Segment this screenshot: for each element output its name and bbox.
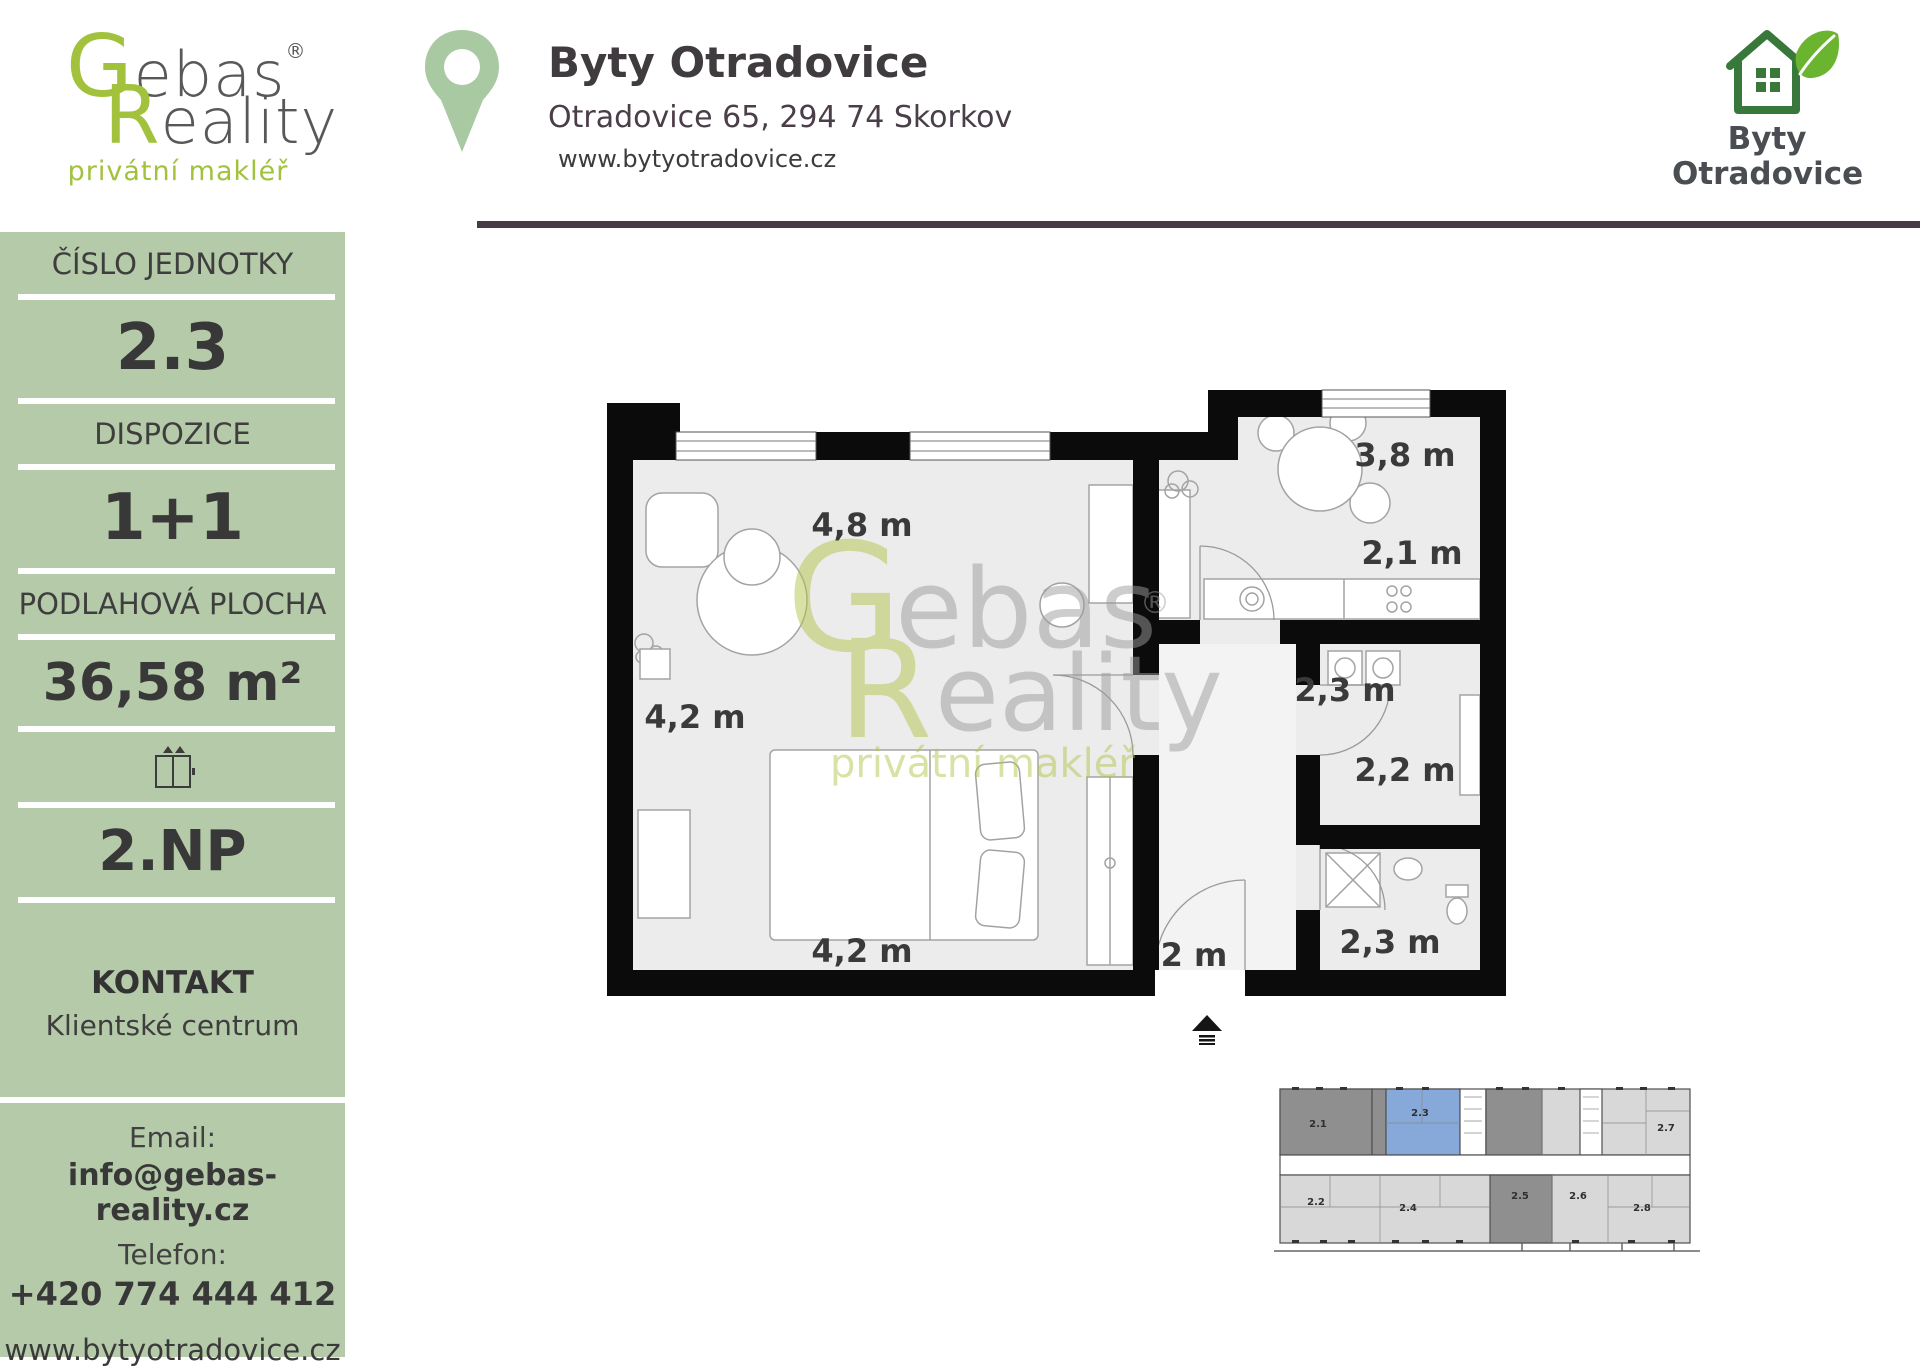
- unit-label: 2.6: [1569, 1191, 1587, 1202]
- unit-label: 2.7: [1657, 1123, 1675, 1134]
- header-divider: [477, 221, 1920, 228]
- measurement-label: 2,3 m: [1339, 923, 1440, 961]
- leaf-icon: [1796, 31, 1839, 78]
- floor-area-label: PODLAHOVÁ PLOCHA: [0, 586, 345, 622]
- highlighted-unit-2-3: [1386, 1089, 1460, 1155]
- measurement-label: 4,2 m: [644, 698, 745, 736]
- divider: [18, 897, 335, 903]
- layout-label: DISPOZICE: [0, 416, 345, 452]
- phone-label: Telefon:: [0, 1238, 345, 1271]
- floor-area-value: 36,58 m²: [0, 652, 345, 714]
- unit-label: 2.4: [1399, 1203, 1417, 1214]
- gebas-logo-tagline: privátní makléř: [58, 156, 298, 187]
- measurement-label: 2,1 m: [1361, 534, 1462, 572]
- miniplan-ground-line: [1274, 1243, 1700, 1251]
- unit-label: 2.2: [1307, 1197, 1325, 1208]
- house-leaf-icon: [1692, 18, 1842, 118]
- website-link[interactable]: www.bytyotradovice.cz: [558, 145, 1012, 173]
- divider: [18, 568, 335, 574]
- divider: [18, 802, 335, 808]
- divider: [18, 294, 335, 300]
- measurement-label: 2 m: [1161, 936, 1228, 974]
- header: Byty Otradovice Otradovice 65, 294 74 Sk…: [548, 40, 1012, 173]
- gebas-reality-logo: Gebas® Reality privátní makléř: [58, 24, 288, 204]
- sidebar: ČÍSLO JEDNOTKY 2.3 DISPOZICE 1+1 PODLAHO…: [0, 232, 345, 1097]
- unit-label: 2.5: [1511, 1191, 1529, 1202]
- coffee-table: [724, 529, 780, 585]
- location-pin-icon: [423, 28, 501, 158]
- divider: [18, 726, 335, 732]
- bathroom-sink: [1394, 858, 1422, 880]
- kitchen-counter: [1204, 579, 1480, 619]
- measurement-label: 2,3 m: [1294, 671, 1395, 709]
- sidebar-contact-block: Email: info@gebas-reality.cz Telefon: +4…: [0, 1103, 345, 1357]
- window: [1322, 390, 1430, 417]
- measurement-label: 3,8 m: [1354, 436, 1455, 474]
- gebas-logo-line2: Reality: [104, 76, 338, 156]
- measurement-label: 4,8 m: [811, 506, 912, 544]
- watermark-eality: eality: [935, 633, 1223, 755]
- watermark-tagline: privátní makléř: [830, 741, 1135, 787]
- wardrobe: [1087, 777, 1133, 965]
- email-link[interactable]: info@gebas-reality.cz: [0, 1158, 345, 1228]
- byty-logo-line2: Otradovice: [1672, 157, 1862, 192]
- dresser: [638, 810, 690, 918]
- registered-mark: ®: [285, 39, 305, 63]
- divider: [18, 398, 335, 404]
- measurement-label: 2,2 m: [1354, 751, 1455, 789]
- email-label: Email:: [0, 1121, 345, 1154]
- gebas-logo-r: R: [104, 69, 161, 162]
- armchair: [646, 493, 718, 567]
- divider: [18, 464, 335, 470]
- measurement-label: 4,2 m: [811, 932, 912, 970]
- shower: [1326, 853, 1380, 907]
- nightstand: [640, 649, 670, 679]
- watermark-reg: ®: [1140, 586, 1170, 621]
- entrance-arrow-icon: [1192, 1015, 1222, 1045]
- layout-value: 1+1: [0, 482, 345, 556]
- window: [910, 432, 1050, 460]
- unit-number-label: ČÍSLO JEDNOTKY: [0, 246, 345, 282]
- unit-number-value: 2.3: [0, 312, 345, 386]
- page-title: Byty Otradovice: [548, 40, 1012, 86]
- shelf: [1460, 695, 1480, 795]
- unit-label: 2.1: [1309, 1119, 1327, 1130]
- contact-subheading: Klientské centrum: [0, 1009, 345, 1042]
- toilet: [1446, 885, 1468, 924]
- contact-heading: KONTAKT: [0, 965, 345, 1001]
- sidebar-website-link[interactable]: www.bytyotradovice.cz: [0, 1333, 345, 1367]
- byty-logo-line1: Byty: [1672, 122, 1862, 157]
- unit-label: 2.3: [1411, 1108, 1429, 1119]
- gebas-logo-eality: eality: [161, 85, 339, 158]
- floor-plan: G ebas ® R eality privátní makléř 4,8 m …: [600, 385, 1520, 1045]
- miniplan-units: [1280, 1089, 1690, 1243]
- address: Otradovice 65, 294 74 Skorkov: [548, 100, 1012, 135]
- elevator-icon: [148, 744, 198, 790]
- unit-label: 2.8: [1633, 1203, 1651, 1214]
- building-overview-plan: 2.1 2.3 2.7 2.2 2.4 2.5 2.6 2.8: [1272, 1083, 1702, 1255]
- window: [676, 432, 816, 460]
- divider: [18, 634, 335, 640]
- byty-otradovice-logo: Byty Otradovice: [1672, 18, 1862, 191]
- house-icon: [1730, 34, 1804, 110]
- phone-link[interactable]: +420 774 444 412: [0, 1275, 345, 1313]
- floor-level-value: 2.NP: [0, 820, 345, 884]
- location-pin-svg: [423, 28, 501, 154]
